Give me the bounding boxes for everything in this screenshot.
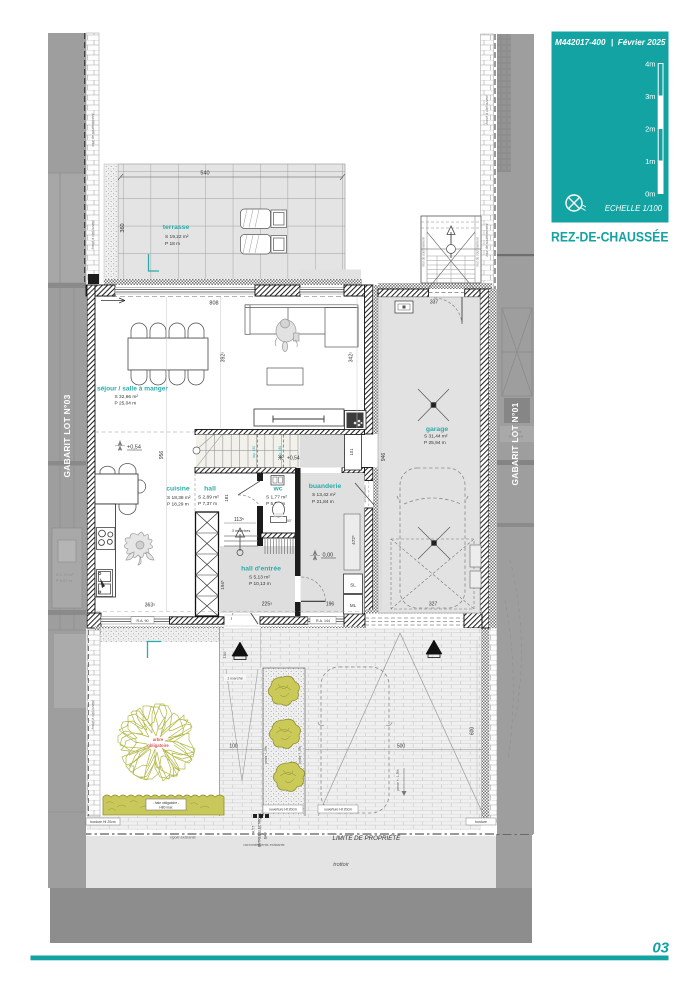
- svg-text:100: 100: [222, 651, 227, 658]
- svg-text:600: 600: [470, 727, 476, 736]
- svg-text:accès 80x200: accès 80x200: [363, 485, 367, 503]
- svg-text:225⁵: 225⁵: [262, 602, 272, 608]
- svg-text:buanderie: buanderie: [309, 483, 342, 490]
- svg-text:REZ-DE-CHAUSSÉE: REZ-DE-CHAUSSÉE: [551, 229, 669, 246]
- svg-text:R.A. 90: R.A. 90: [137, 619, 149, 623]
- svg-text:P 7,37 m: P 7,37 m: [198, 501, 217, 507]
- svg-text:- haie obligatoire -: - haie obligatoire -: [153, 801, 179, 805]
- svg-text:P 18,29 m: P 18,29 m: [167, 502, 189, 508]
- svg-text:3m: 3m: [645, 92, 655, 101]
- svg-text:terrasse: terrasse: [163, 224, 190, 231]
- svg-text:ECHELLE 1/100: ECHELLE 1/100: [605, 204, 663, 213]
- svg-text:181: 181: [224, 494, 229, 502]
- svg-text:101: 101: [349, 448, 354, 456]
- svg-text:trottoir: trottoir: [333, 862, 350, 868]
- svg-text:fossé à ciel ouvert: fossé à ciel ouvert: [91, 220, 95, 250]
- svg-text:cuisine: cuisine: [166, 486, 190, 493]
- svg-text:S 1,77 m²: S 1,77 m²: [266, 495, 287, 501]
- svg-text:0m: 0m: [645, 190, 655, 199]
- svg-text:03: 03: [652, 940, 669, 957]
- svg-text:956: 956: [159, 451, 165, 460]
- svg-text:rigole existante: rigole existante: [170, 836, 196, 840]
- svg-text:EAU: EAU: [264, 832, 268, 839]
- svg-text:P 18 m: P 18 m: [165, 241, 180, 247]
- svg-text:H80 max: H80 max: [159, 806, 173, 810]
- svg-text:fossé à ciel ouvert: fossé à ciel ouvert: [91, 700, 95, 730]
- svg-text:obligatoire: obligatoire: [147, 743, 169, 748]
- svg-text:327: 327: [429, 602, 438, 608]
- svg-text:4m: 4m: [645, 60, 655, 69]
- svg-text:hsp. 180: hsp. 180: [252, 446, 256, 458]
- svg-text:mur de soutènement: mur de soutènement: [476, 237, 480, 266]
- svg-text:P 10,13 m: P 10,13 m: [249, 581, 271, 587]
- svg-text:472⁵: 472⁵: [351, 535, 356, 545]
- svg-text:P 5,57 m: P 5,57 m: [56, 578, 73, 583]
- svg-text:pente +- 1,5%: pente +- 1,5%: [396, 769, 400, 790]
- svg-text:pente +- 5%: pente +- 5%: [298, 746, 302, 763]
- svg-text:A.T.7: A.T.7: [252, 826, 256, 833]
- svg-text:P 21,84 m: P 21,84 m: [312, 499, 334, 505]
- svg-text:P 25,94 m: P 25,94 m: [424, 440, 446, 446]
- svg-text:S 1,70 m²: S 1,70 m²: [56, 572, 74, 577]
- svg-text:3 marches: 3 marches: [232, 528, 251, 533]
- svg-text:196: 196: [326, 602, 335, 608]
- svg-text:113⁵: 113⁵: [234, 517, 244, 523]
- svg-text:+0,54: +0,54: [127, 445, 141, 451]
- svg-text:90°: 90°: [287, 519, 293, 523]
- svg-text:540: 540: [200, 171, 209, 177]
- svg-text:S 13,42 m²: S 13,42 m²: [312, 492, 336, 498]
- svg-text:342⁵: 342⁵: [349, 352, 355, 362]
- svg-text:séjour / salle à manger: séjour / salle à manger: [97, 386, 169, 393]
- svg-text:S 18,38 m²: S 18,38 m²: [167, 495, 191, 501]
- svg-text:337: 337: [430, 300, 439, 306]
- svg-text:808: 808: [209, 301, 218, 307]
- svg-text:S 31,44 m²: S 31,44 m²: [424, 434, 448, 440]
- svg-text:raccordements existants: raccordements existants: [243, 843, 284, 847]
- svg-text:392⁵: 392⁵: [221, 352, 227, 362]
- svg-text:S 19,22 m²: S 19,22 m²: [165, 234, 189, 240]
- svg-text:1 marche: 1 marche: [227, 677, 243, 681]
- svg-text:GABARIT LOT N°03: GABARIT LOT N°03: [62, 394, 72, 477]
- svg-text:garage: garage: [426, 426, 449, 433]
- svg-text:mur de soutènement: mur de soutènement: [485, 223, 489, 257]
- svg-text:0,00: 0,00: [323, 553, 334, 559]
- svg-text:pente +- 5%: pente +- 5%: [264, 746, 268, 763]
- svg-text:mur de soutènement: mur de soutènement: [91, 113, 95, 147]
- svg-text:GABARIT LOT N°01: GABARIT LOT N°01: [510, 402, 520, 485]
- svg-text:hall d'entrée: hall d'entrée: [241, 566, 281, 573]
- svg-text:+0,54: +0,54: [287, 456, 300, 462]
- svg-text:bordure: bordure: [475, 820, 487, 824]
- svg-text:|: |: [611, 38, 613, 47]
- svg-text:P 25,04 m: P 25,04 m: [115, 401, 137, 407]
- svg-text:100: 100: [229, 744, 238, 750]
- svg-text:946: 946: [381, 453, 387, 462]
- svg-text:Février 2025: Février 2025: [618, 38, 666, 47]
- svg-text:ML: ML: [350, 603, 357, 608]
- svg-text:mur de soutènement: mur de soutènement: [422, 237, 426, 266]
- svg-text:1m: 1m: [645, 157, 655, 166]
- svg-text:ouverture Ht 20cm: ouverture Ht 20cm: [269, 808, 297, 812]
- svg-text:ENTREE ELECTRIQUE: ENTREE ELECTRIQUE: [258, 813, 262, 847]
- svg-text:SL: SL: [350, 583, 356, 588]
- svg-text:fossé à ciel ouvert: fossé à ciel ouvert: [485, 95, 489, 125]
- svg-text:194⁵: 194⁵: [220, 580, 225, 590]
- svg-text:M442017-400: M442017-400: [555, 38, 606, 47]
- svg-text:S 2,89 m²: S 2,89 m²: [198, 495, 219, 501]
- svg-text:ouverture Ht 20cm: ouverture Ht 20cm: [324, 808, 352, 812]
- svg-text:LIMITE DE PROPRIÉTÉ: LIMITE DE PROPRIÉTÉ: [333, 835, 402, 842]
- svg-text:360: 360: [120, 223, 126, 232]
- svg-text:hall: hall: [204, 486, 216, 493]
- svg-text:R.A. 144: R.A. 144: [316, 619, 330, 623]
- svg-text:arbre: arbre: [153, 737, 164, 742]
- svg-text:2m: 2m: [645, 125, 655, 134]
- svg-text:bordure Ht 20cm: bordure Ht 20cm: [90, 820, 115, 824]
- svg-text:500: 500: [397, 744, 406, 750]
- svg-text:wc: wc: [272, 486, 282, 493]
- svg-text:S 32,66 m²: S 32,66 m²: [115, 394, 139, 400]
- svg-text:363⁵: 363⁵: [145, 603, 155, 609]
- svg-text:S 5,13 m²: S 5,13 m²: [249, 575, 270, 581]
